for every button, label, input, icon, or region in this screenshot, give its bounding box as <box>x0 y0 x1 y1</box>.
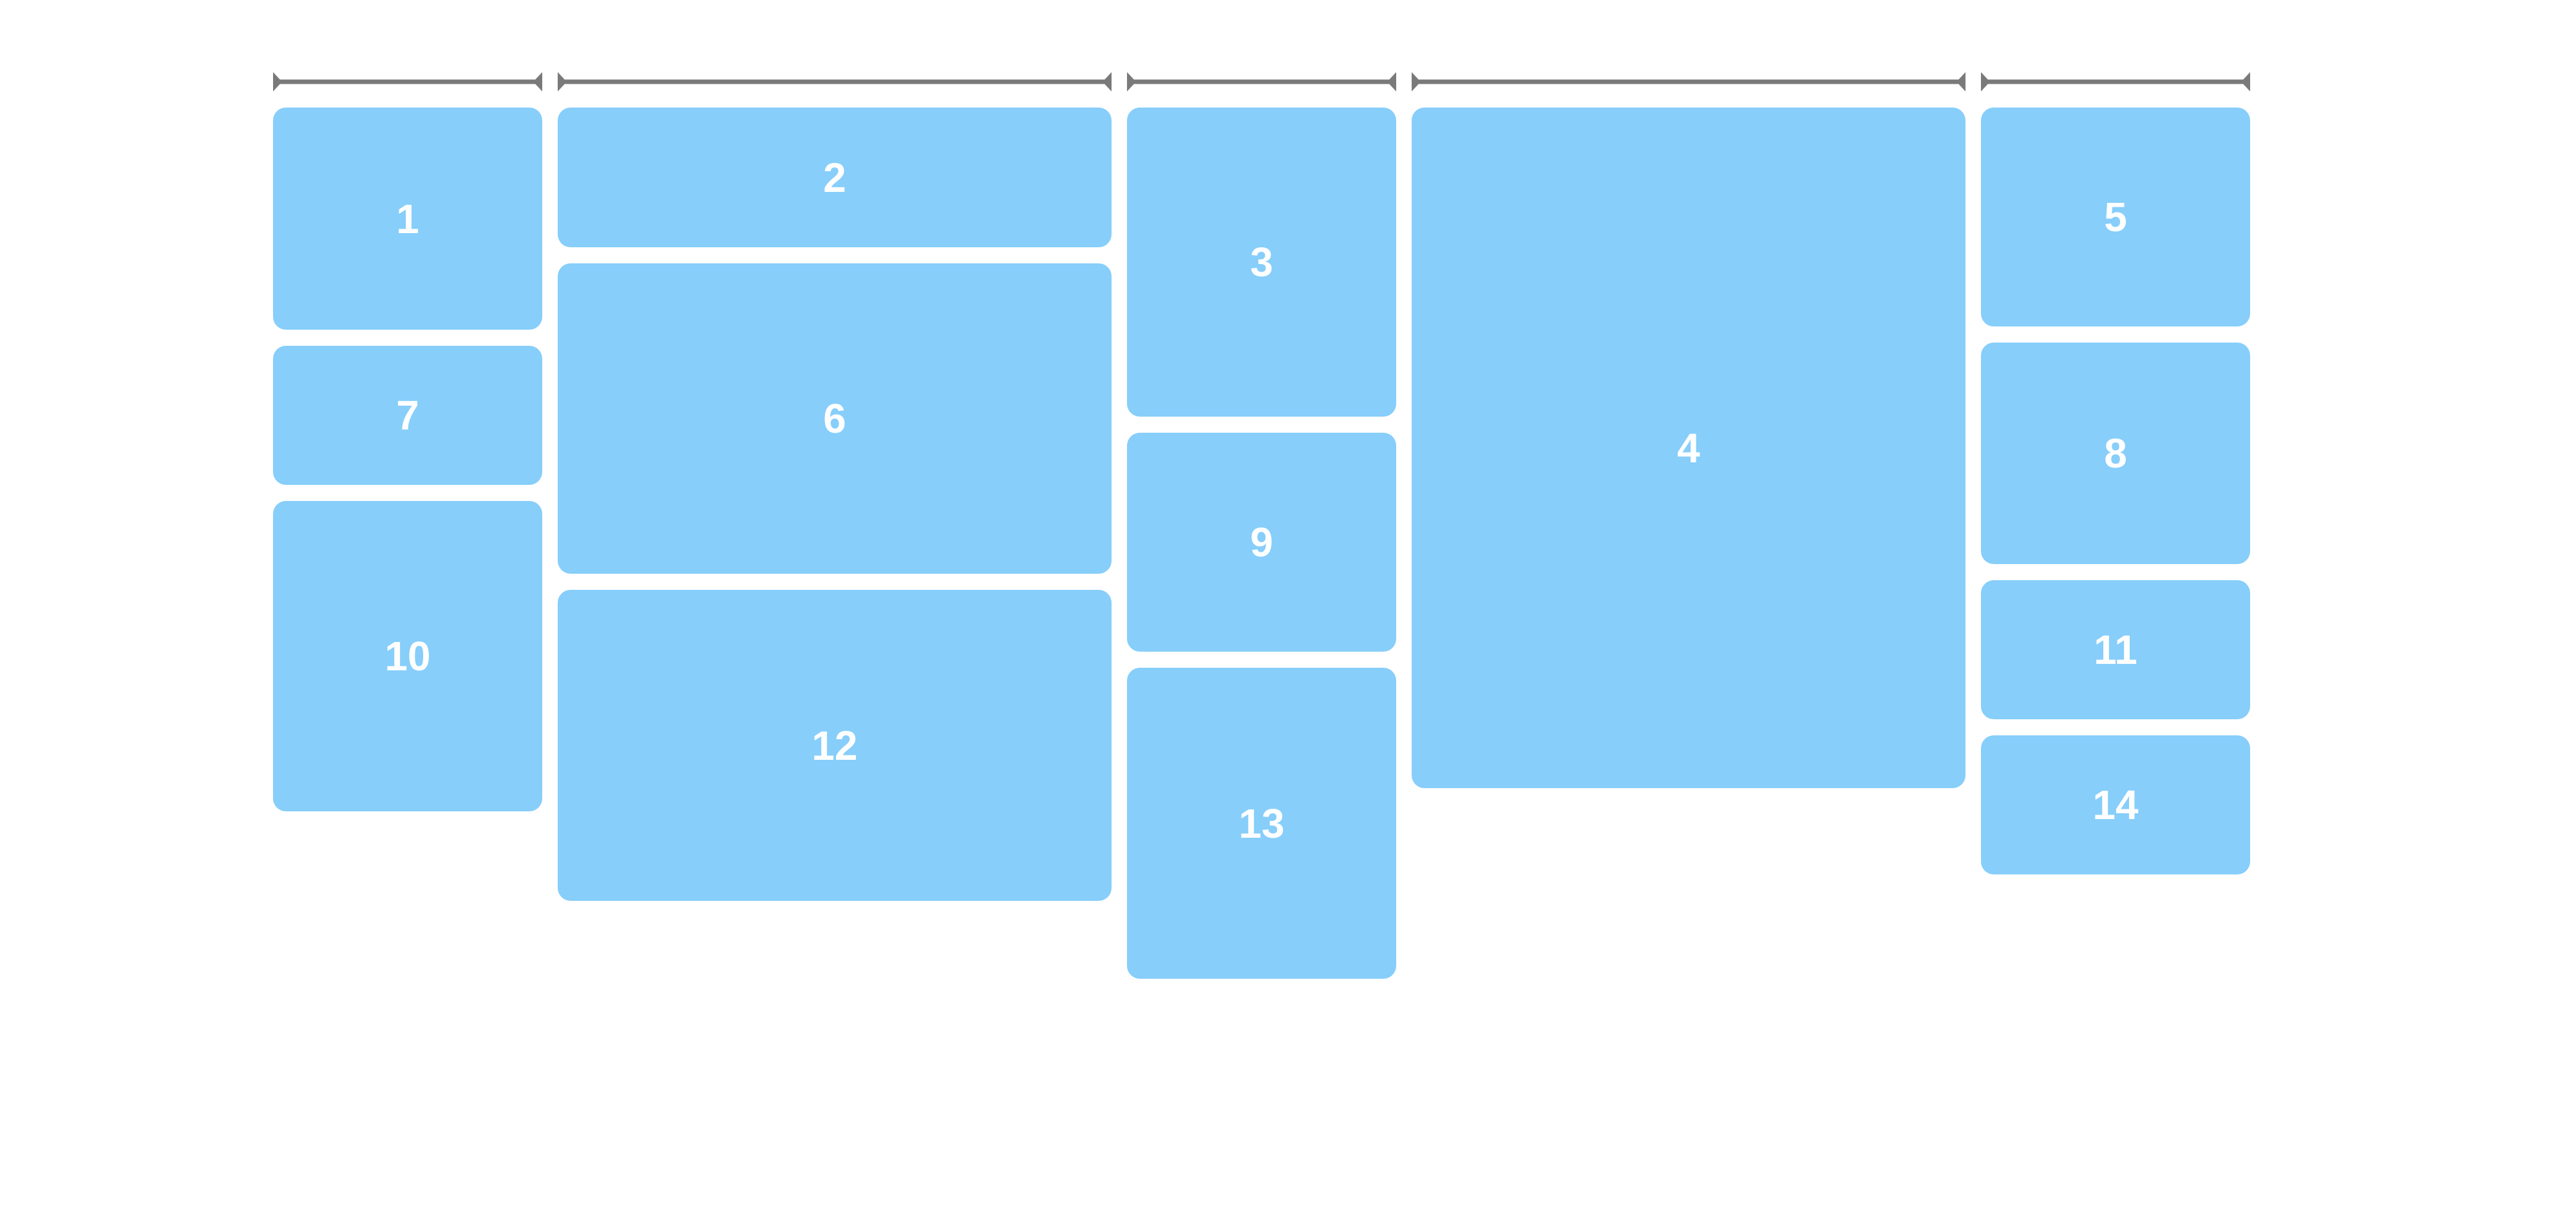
column-measure-line-3 <box>1127 71 1396 93</box>
masonry-item-13: 13 <box>1127 668 1396 979</box>
ruler-left-arrow-icon <box>1412 72 1421 91</box>
column-measure-line-5 <box>1981 71 2250 93</box>
column-measure-line-4 <box>1412 71 1965 93</box>
masonry-item-number: 8 <box>2104 433 2127 474</box>
masonry-item-number: 14 <box>2092 784 2138 826</box>
masonry-item-10: 10 <box>273 501 542 811</box>
masonry-item-12: 12 <box>558 590 1112 901</box>
masonry-item-8: 8 <box>1981 343 2250 564</box>
masonry-item-number: 10 <box>384 636 430 677</box>
masonry-item-number: 3 <box>1250 241 1273 283</box>
masonry-item-number: 7 <box>396 395 419 436</box>
ruler-left-arrow-icon <box>1127 72 1136 91</box>
masonry-item-number: 13 <box>1238 803 1284 844</box>
ruler-left-arrow-icon <box>1981 72 1990 91</box>
ruler-left-arrow-icon <box>273 72 282 91</box>
masonry-item-2: 2 <box>558 108 1112 247</box>
ruler-right-arrow-icon <box>1387 72 1396 91</box>
masonry-item-number: 5 <box>2104 196 2127 238</box>
masonry-item-9: 9 <box>1127 433 1396 652</box>
masonry-item-6: 6 <box>558 263 1112 574</box>
masonry-item-number: 6 <box>823 398 846 439</box>
masonry-item-4: 4 <box>1412 108 1965 788</box>
masonry-item-11: 11 <box>1981 580 2250 719</box>
masonry-item-7: 7 <box>273 346 542 485</box>
masonry-item-number: 11 <box>2094 629 2137 670</box>
column-measure-line-1 <box>273 71 542 93</box>
ruler-left-arrow-icon <box>558 72 567 91</box>
ruler-right-arrow-icon <box>1103 72 1112 91</box>
masonry-item-1: 1 <box>273 108 542 330</box>
masonry-item-number: 12 <box>811 725 857 766</box>
masonry-item-number: 2 <box>823 157 846 198</box>
masonry-item-3: 3 <box>1127 108 1396 417</box>
masonry-item-number: 1 <box>396 198 419 240</box>
masonry-item-number: 9 <box>1250 522 1273 563</box>
ruler-right-arrow-icon <box>1956 72 1965 91</box>
masonry-item-14: 14 <box>1981 735 2250 874</box>
masonry-item-number: 4 <box>1677 428 1700 469</box>
masonry-item-5: 5 <box>1981 108 2250 326</box>
column-measure-line-2 <box>558 71 1112 93</box>
ruler-right-arrow-icon <box>2241 72 2250 91</box>
ruler-right-arrow-icon <box>533 72 542 91</box>
masonry-layout-demo-page: 1234567891011121314 <box>0 0 2576 1208</box>
